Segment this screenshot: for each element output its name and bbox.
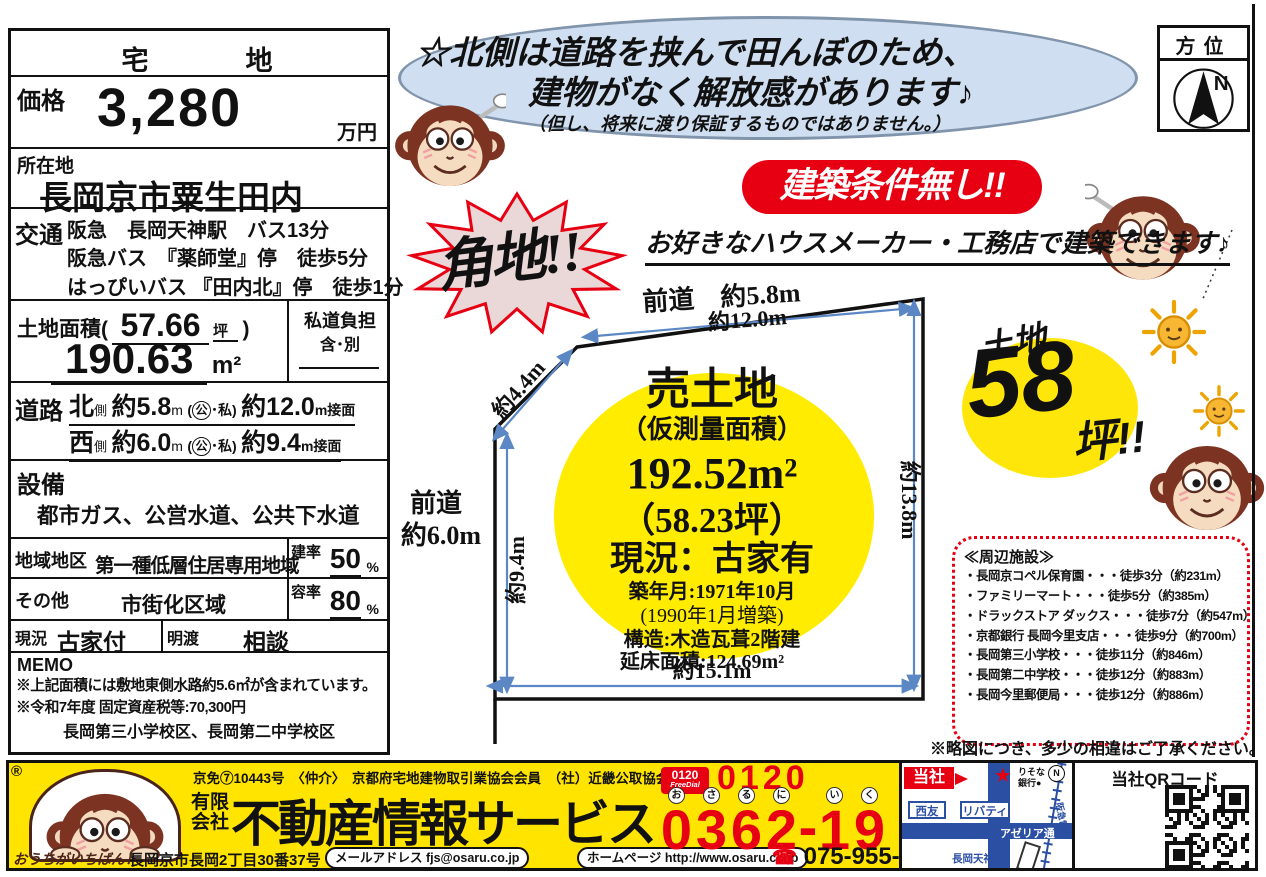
sale-land-built: 築年月:1971年10月 bbox=[628, 579, 796, 603]
front-road-left-value: 約6.0m bbox=[401, 520, 482, 550]
surroundings-item: ・京都銀行 長岡今里支店・・・徒歩9分（約700m） bbox=[964, 627, 1238, 647]
surroundings-item: ・ドラックストア ダックス・・・徒歩7分（約547m） bbox=[964, 607, 1238, 627]
transport-row: 交通 阪急 長岡天神駅 バス13分 阪急バス 『薬師堂』停 徒歩5分 はっぴいバ… bbox=[11, 207, 387, 299]
map-bank-label: 銀行● bbox=[1018, 778, 1045, 789]
road-side: 北 bbox=[69, 393, 94, 421]
zoning-row: 地域地区 第一種低層住居専用地域 建率 50 % bbox=[11, 537, 387, 577]
company-prefix-2: 会社 bbox=[191, 813, 229, 833]
bcr-value: 50 bbox=[330, 543, 361, 577]
private-road-answer-line bbox=[299, 367, 379, 369]
email-pill: メールアドレス fjs@osaru.co.jp bbox=[325, 847, 529, 869]
road-label: 道路 bbox=[15, 391, 63, 426]
sale-land-area-tsubo: （58.23坪） bbox=[620, 501, 804, 540]
dim-right-label: 約13.8m bbox=[897, 461, 922, 540]
sun-icon bbox=[1138, 296, 1210, 368]
bcr-label: 建率 bbox=[291, 541, 321, 562]
dim-left-label: 約9.4m bbox=[504, 536, 529, 604]
phone-digit: 3 bbox=[696, 804, 727, 856]
company-logo-monkey-icon bbox=[32, 772, 178, 860]
sale-land-subtitle: （仮測量面積） bbox=[621, 415, 803, 444]
memo-row: MEMO ※上記面積には敷地東側水路約5.6㎡が含まれています。 ※令和7年度 … bbox=[11, 651, 387, 752]
location-row: 所在地 長岡京市粟生田内 bbox=[11, 147, 387, 207]
memo-label: MEMO bbox=[17, 655, 73, 676]
zoning-label: 地域地区 bbox=[15, 547, 87, 573]
map-seiyu-label: 西友 bbox=[908, 801, 946, 819]
other-row: その他 市街化区域 容率 80 % bbox=[11, 577, 387, 619]
freedial-logo-number: 0120 bbox=[661, 767, 709, 781]
surroundings-item: ・長岡第二中学校・・・徒歩12分（約883m） bbox=[964, 666, 1238, 686]
surroundings-box: ≪周辺施設≫ ・長岡京コペル保育園・・・徒歩3分（約231m） ・ファミリーマー… bbox=[952, 536, 1250, 746]
other-value: 市街化区域 bbox=[121, 589, 226, 619]
phone-icon: ☎ bbox=[772, 847, 797, 869]
road-width-unit: m bbox=[171, 438, 183, 454]
company-name: 不動産情報サービス bbox=[231, 784, 654, 856]
sun-icon bbox=[1190, 382, 1248, 440]
footer-map: 阪急電車 当社 ★ りそな 銀行● N 西友 リバティ アゼリア通 長岡天神駅 bbox=[899, 763, 1075, 868]
sale-land-status: 現況：古家有 bbox=[610, 540, 814, 578]
road-kind-rest: ･私) bbox=[211, 438, 237, 454]
facilities-value: 都市ガス、公営水道、公共下水道 bbox=[37, 499, 360, 530]
land-area-sqm: 190.63 bbox=[51, 335, 207, 385]
footer-qr-section: 当社QRコード bbox=[1075, 763, 1255, 868]
sale-land-title: 売土地 bbox=[646, 365, 778, 414]
land-area-divider bbox=[287, 301, 289, 381]
road-frontage-unit: m接面 bbox=[301, 438, 341, 454]
map-station-label: 長岡天神駅 bbox=[952, 851, 1005, 866]
sketch-disclaimer: ※略図につき、多少の相違はご了承ください。 bbox=[930, 735, 1265, 759]
qr-code bbox=[1165, 785, 1249, 869]
map-bank-label: りそな bbox=[1018, 767, 1045, 778]
land-size-suffix: 坪!! bbox=[1069, 400, 1149, 471]
road-width: 約6.0 bbox=[111, 429, 171, 457]
other-label: その他 bbox=[15, 587, 69, 613]
surroundings-item: ・長岡京コペル保育園・・・徒歩3分（約231m） bbox=[964, 567, 1238, 587]
status-row: 現況 古家付 明渡 相談 bbox=[11, 619, 387, 651]
price-label: 価格 bbox=[17, 81, 65, 116]
private-road-label: 私道負担 bbox=[297, 307, 383, 333]
property-type-header: 宅 地 bbox=[11, 31, 387, 75]
far-value: 80 bbox=[330, 585, 361, 619]
bubble-line2: 建物がなく解放感があります♪ bbox=[528, 66, 974, 114]
transport-line: 阪急 長岡天神駅 バス13分 bbox=[67, 217, 404, 245]
map-company-marker: 当社 bbox=[904, 767, 954, 789]
land-area-paren: ) bbox=[242, 318, 249, 341]
compass-north-label: N bbox=[1214, 72, 1229, 95]
road-frontage: 約12.0 bbox=[241, 393, 315, 421]
road-side-sub: 側 bbox=[94, 403, 107, 418]
compass-box: 方位 N bbox=[1157, 25, 1250, 132]
right-border-line bbox=[1252, 4, 1255, 757]
transport-label: 交通 bbox=[15, 215, 63, 250]
price-row: 価格 3,280 万円 bbox=[11, 75, 387, 147]
map-company-arrow bbox=[955, 773, 968, 785]
price-unit: 万円 bbox=[337, 116, 377, 145]
company-prefix-1: 有限 bbox=[191, 793, 229, 813]
status-label: 現況 bbox=[15, 625, 47, 649]
company-tagline: おうちがいちばん！ bbox=[13, 849, 139, 869]
map-railway-label: 阪急電車 bbox=[1054, 801, 1071, 838]
road-frontage: 約9.4 bbox=[241, 429, 301, 457]
road-frontage-unit: m接面 bbox=[315, 402, 355, 418]
road-kind-circled: 公 bbox=[192, 437, 211, 456]
road-side: 西 bbox=[69, 429, 94, 457]
sale-land-floor-area: 延床面積:124.69m² bbox=[619, 649, 784, 673]
bcr-unit: % bbox=[367, 559, 379, 575]
price-value: 3,280 bbox=[97, 77, 242, 139]
far-unit: % bbox=[367, 601, 379, 617]
far-label: 容率 bbox=[291, 581, 321, 602]
surroundings-title: ≪周辺施設≫ bbox=[964, 546, 1238, 567]
phone-digit: 6 bbox=[731, 804, 762, 856]
map-star-icon: ★ bbox=[994, 763, 1012, 788]
plot-diagram: 約12.0m 約4.4m 約9.4m 約13.8m 約15.1m 前道 約5.8… bbox=[393, 278, 965, 764]
no-building-conditions-badge: 建築条件無し!! bbox=[742, 160, 1042, 214]
surroundings-item: ・長岡今里郵便局・・・徒歩12分（約886m） bbox=[964, 686, 1238, 706]
land-area-row: 土地面積( 57.66 坪 ) 190.63 m² 私道負担 含･別 bbox=[11, 299, 387, 381]
map-north-icon: N bbox=[1048, 765, 1065, 782]
bubble-note: （但し、将来に渡り保証するものではありません。） bbox=[528, 110, 950, 136]
other-divider bbox=[287, 579, 289, 619]
compass-icon: N bbox=[1160, 61, 1247, 133]
monkey-mascot-top-left bbox=[394, 78, 506, 200]
school-district-note: 長岡第三小学校区、長岡第二中学校区 bbox=[11, 718, 387, 742]
facilities-row: 設備 都市ガス、公営水道、公共下水道 bbox=[11, 459, 387, 537]
company-address: 長岡京市長岡2丁目30番37号 bbox=[129, 849, 321, 870]
map-street-label: アゼリア通 bbox=[1000, 825, 1055, 841]
handover-label: 明渡 bbox=[167, 625, 199, 649]
transport-line: 阪急バス 『薬師堂』停 徒歩5分 bbox=[67, 245, 404, 273]
sale-land-extension: (1990年1月増築) bbox=[640, 604, 783, 627]
surroundings-item: ・ファミリーマート・・・徒歩5分（約385m） bbox=[964, 587, 1238, 607]
road-kind-rest: ･私) bbox=[211, 402, 237, 418]
property-spec-table: 宅 地 価格 3,280 万円 所在地 長岡京市粟生田内 交通 阪急 長岡天神駅… bbox=[8, 28, 390, 755]
private-road-value: 含･別 bbox=[297, 331, 383, 355]
builder-free-note: お好きなハウスメーカー・工務店で建築できます♪ bbox=[645, 223, 1230, 266]
flyer-root: 宅 地 価格 3,280 万円 所在地 長岡京市粟生田内 交通 阪急 長岡天神駅… bbox=[0, 0, 1266, 877]
registered-mark: ® bbox=[11, 763, 22, 780]
road-kind-circled: 公 bbox=[192, 401, 211, 420]
compass-title: 方位 bbox=[1160, 28, 1247, 61]
road-width: 約5.8 bbox=[111, 393, 171, 421]
map-liberty-label: リバティ bbox=[960, 801, 1010, 819]
zoning-value: 第一種低層住居専用地域 bbox=[95, 549, 299, 578]
land-area-sqm-unit: m² bbox=[212, 352, 241, 379]
road-side-sub: 側 bbox=[94, 439, 107, 454]
road-row: 道路 北側 約5.8m (公･私) 約12.0m接面 西側 約6.0m (公･私… bbox=[11, 381, 387, 459]
sale-land-structure: 構造:木造瓦葺2階建 bbox=[624, 627, 801, 651]
memo-line: ※令和7年度 固定資産税等:70,300円 bbox=[16, 697, 376, 719]
memo-line: ※上記面積には敷地東側水路約5.6㎡が含まれています。 bbox=[16, 675, 376, 697]
land-size-number: 58 bbox=[961, 325, 1080, 434]
surroundings-item: ・長岡第三小学校・・・徒歩11分（約846m） bbox=[964, 646, 1238, 666]
footer-banner: ® 京免⑦10443号 〈仲介〉 京都府宅地建物取引業協会会員 （社）近畿公取協… bbox=[6, 760, 1258, 871]
sale-land-area-sqm: 192.52m² bbox=[627, 449, 798, 498]
front-road-left-label: 前道 bbox=[410, 488, 462, 518]
facilities-label: 設備 bbox=[17, 465, 65, 500]
phone-digit: 0 bbox=[661, 804, 692, 856]
road-width-unit: m bbox=[171, 402, 183, 418]
footer-company-section: ® 京免⑦10443号 〈仲介〉 京都府宅地建物取引業協会会員 （社）近畿公取協… bbox=[9, 763, 899, 868]
transport-line: はっぴいバス 『田内北』停 徒歩1分 bbox=[67, 274, 404, 302]
status-divider bbox=[161, 621, 163, 651]
